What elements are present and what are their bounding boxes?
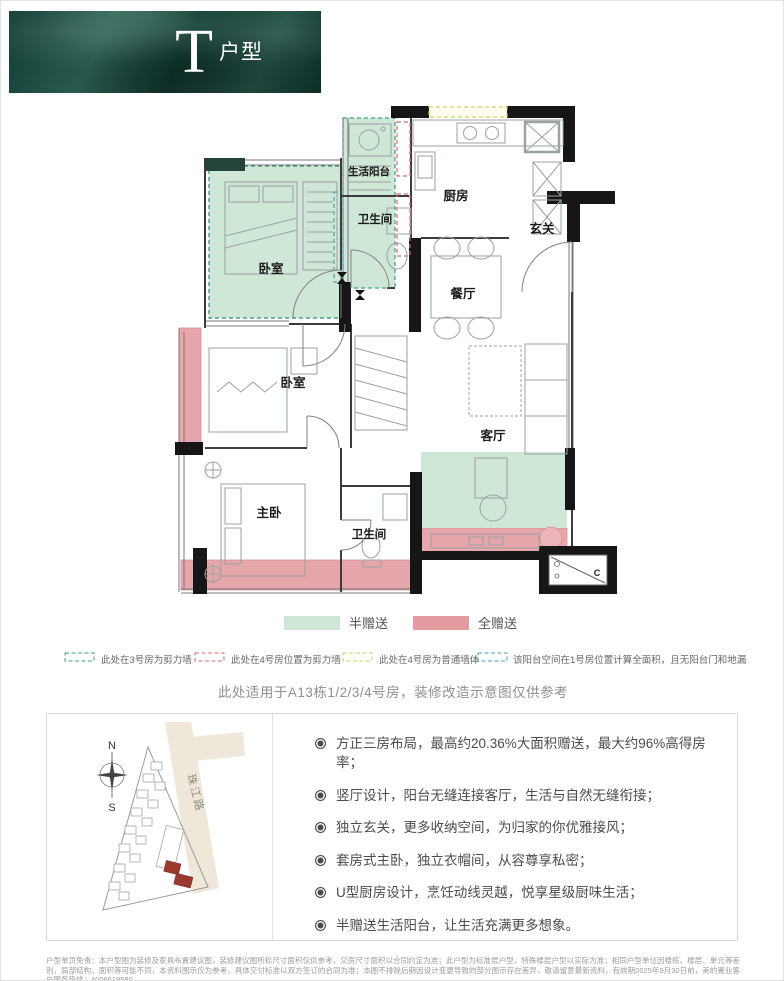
plan-letter: T xyxy=(175,21,213,83)
feature-item: 半赠送生活阳台，让生活充满更多想象。 xyxy=(315,916,725,935)
room-label-bedroom-upper: 卧室 xyxy=(258,261,284,276)
panel-divider xyxy=(272,714,273,940)
plan-banner: T 户型 xyxy=(9,11,321,93)
feature-item: 独立玄关，更多收纳空间，为归家的你优雅接风； xyxy=(315,818,725,837)
teal-dashed-swatch xyxy=(477,652,508,662)
plan-type-label: 户型 xyxy=(219,40,263,65)
wall-legend-label-4: 该阳台空间在1号房位置计算全面积，且无阳台门和地漏 xyxy=(513,652,746,666)
ac-platform: C xyxy=(549,555,607,585)
half-gift-swatch xyxy=(284,616,340,630)
info-panel: 珠江路 N S xyxy=(46,713,738,941)
bullet-icon xyxy=(315,920,326,931)
gift-legend: 半赠送 全赠送 xyxy=(1,613,784,635)
yellow-dashed-swatch xyxy=(342,652,373,662)
room-label-bedroom-mid: 卧室 xyxy=(280,375,306,390)
red-dashed-swatch xyxy=(194,652,225,662)
bullet-icon xyxy=(315,822,326,833)
room-label-entry: 玄关 xyxy=(529,221,555,236)
feature-item: U型厨房设计，烹饪动线灵越，悦享星级厨味生活； xyxy=(315,883,725,902)
room-label-dining: 餐厅 xyxy=(449,286,476,301)
feature-item: 方正三房布局，最高约20.36%大面积赠送，最大约96%高得房率； xyxy=(315,734,725,772)
shear-wall-corner xyxy=(205,158,245,171)
full-gift-left-strip xyxy=(179,328,201,446)
yellow-dashed-wall xyxy=(429,107,507,117)
living-pink-circle xyxy=(540,527,562,549)
legend-full-gift: 全赠送 xyxy=(413,613,517,632)
half-gift-living-area xyxy=(421,452,567,528)
building-footprints xyxy=(109,762,184,900)
room-label-bath-upper: 卫生间 xyxy=(358,212,393,226)
feature-item: 套房式主卧，独立衣帽间，从容尊享私密； xyxy=(315,851,725,870)
wall-legend-label-1: 此处在3号房为剪力墙 xyxy=(101,652,192,666)
compass-north-label: N xyxy=(108,740,116,752)
full-gift-bottom-strip xyxy=(181,560,421,590)
bullet-icon xyxy=(315,887,326,898)
svg-text:C: C xyxy=(594,568,601,578)
room-label-kitchen: 厨房 xyxy=(443,188,468,203)
red-dashed-wall-upper xyxy=(397,122,410,176)
feature-list: 方正三房布局，最高约20.36%大面积赠送，最大约96%高得房率； 竖厅设计，阳… xyxy=(315,734,725,948)
applicability-note: 此处适用于A13栋1/2/3/4号房，装修改造示意图仅供参考 xyxy=(1,681,784,701)
disclaimer-text: 户型单页免责：本户型图为装修及家具布置建议图，装修建议图所标尺寸面积仅供参考，交… xyxy=(46,956,740,981)
floorplan-drawing: C xyxy=(169,96,619,601)
bullet-icon xyxy=(315,738,326,749)
compass-icon: N S xyxy=(96,740,128,814)
site-map: 珠江路 N S xyxy=(61,722,261,932)
room-label-master: 主卧 xyxy=(256,505,282,520)
full-gift-swatch xyxy=(413,616,469,630)
compass-south-label: S xyxy=(108,802,115,814)
wall-legend-label-3: 此处在4号房为普通墙体 xyxy=(379,652,479,666)
room-label-balcony: 生活阳台 xyxy=(348,165,390,178)
room-label-bath-lower: 卫生间 xyxy=(352,527,387,541)
bullet-icon xyxy=(315,790,326,801)
green-dashed-swatch xyxy=(64,652,95,662)
flyer-page: T 户型 xyxy=(0,0,784,981)
room-label-living: 客厅 xyxy=(479,428,506,443)
wall-legend-label-2: 此处在4号房位置为剪力墙 xyxy=(231,652,341,666)
legend-half-gift: 半赠送 xyxy=(284,613,388,632)
wall-legend: 此处在3号房为剪力墙 此处在4号房位置为剪力墙 此处在4号房为普通墙体 该阳台空… xyxy=(1,650,784,666)
bullet-icon xyxy=(315,855,326,866)
feature-item: 竖厅设计，阳台无缝连接客厅，生活与自然无缝衔接； xyxy=(315,786,725,805)
